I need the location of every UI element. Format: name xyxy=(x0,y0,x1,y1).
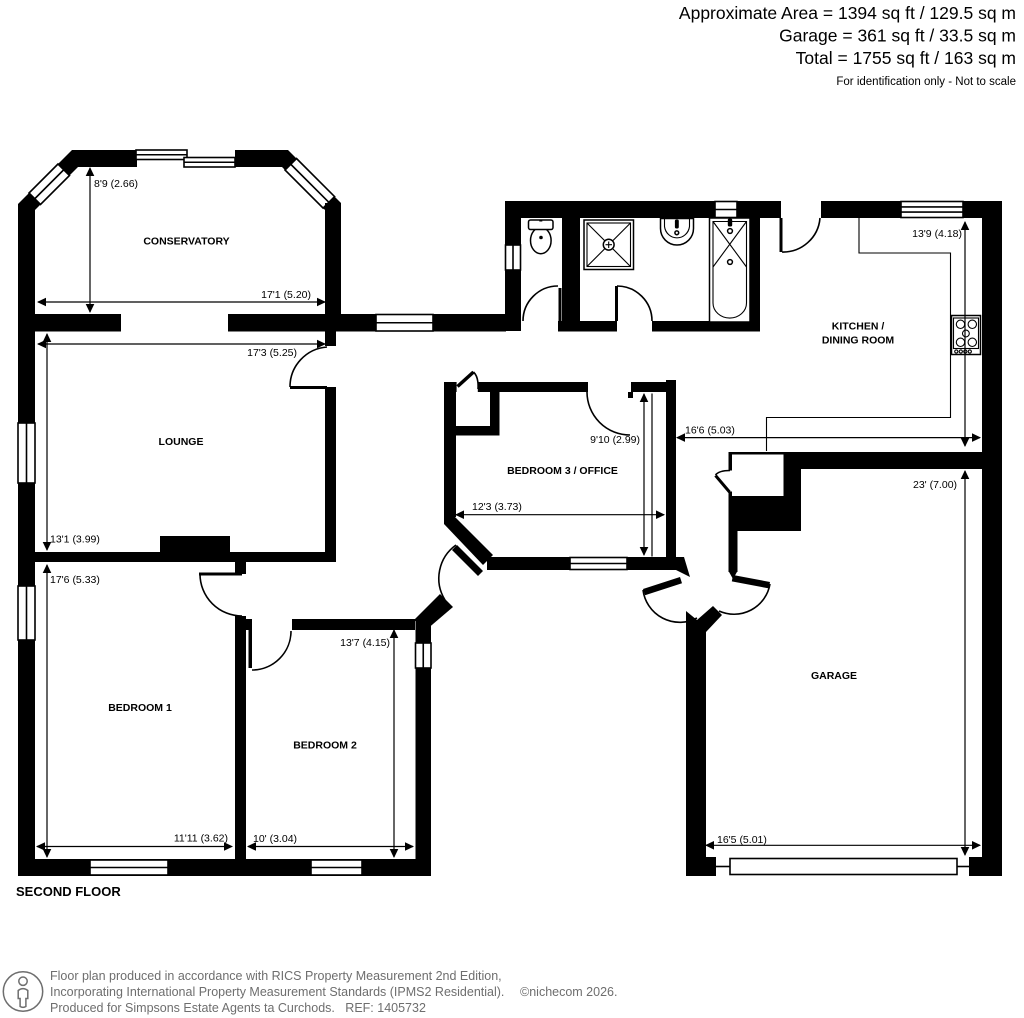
svg-text:For identification only - Not: For identification only - Not to scale xyxy=(836,76,1016,88)
svg-text:Produced for Simpsons Estate A: Produced for Simpsons Estate Agents ta C… xyxy=(50,1001,426,1015)
svg-text:16'6 (5.03): 16'6 (5.03) xyxy=(685,425,735,437)
svg-text:Garage = 361 sq ft / 33.5 sq m: Garage = 361 sq ft / 33.5 sq m xyxy=(779,26,1016,46)
svg-text:LOUNGE: LOUNGE xyxy=(159,436,204,448)
svg-text:Floor plan produced in accorda: Floor plan produced in accordance with R… xyxy=(50,969,502,983)
svg-text:13'1 (3.99): 13'1 (3.99) xyxy=(50,534,100,546)
svg-text:BEDROOM 1: BEDROOM 1 xyxy=(108,702,172,714)
svg-text:DINING ROOM: DINING ROOM xyxy=(822,335,895,347)
svg-text:KITCHEN /: KITCHEN / xyxy=(832,321,885,333)
svg-text:GARAGE: GARAGE xyxy=(811,670,857,682)
svg-text:Approximate Area = 1394 sq ft: Approximate Area = 1394 sq ft / 129.5 sq… xyxy=(679,3,1016,23)
svg-text:SECOND FLOOR: SECOND FLOOR xyxy=(16,884,121,899)
svg-text:9'10 (2.99): 9'10 (2.99) xyxy=(590,434,640,446)
svg-text:11'11 (3.62): 11'11 (3.62) xyxy=(174,833,228,845)
svg-text:17'3 (5.25): 17'3 (5.25) xyxy=(247,347,297,359)
svg-text:BEDROOM 2: BEDROOM 2 xyxy=(293,740,357,752)
svg-text:Incorporating International Pr: Incorporating International Property Mea… xyxy=(50,985,504,999)
svg-text:23' (7.00): 23' (7.00) xyxy=(913,479,957,491)
svg-text:17'1 (5.20): 17'1 (5.20) xyxy=(261,289,311,301)
svg-text:16'5 (5.01): 16'5 (5.01) xyxy=(717,834,767,846)
svg-text:17'6 (5.33): 17'6 (5.33) xyxy=(50,574,100,586)
svg-text:10' (3.04): 10' (3.04) xyxy=(253,833,297,845)
svg-text:8'9 (2.66): 8'9 (2.66) xyxy=(94,178,138,190)
svg-text:CONSERVATORY: CONSERVATORY xyxy=(143,236,229,248)
svg-text:12'3 (3.73): 12'3 (3.73) xyxy=(472,501,522,513)
svg-text:13'9 (4.18): 13'9 (4.18) xyxy=(912,228,962,240)
svg-text:©nichecom 2026.: ©nichecom 2026. xyxy=(520,985,617,999)
svg-text:BEDROOM 3 / OFFICE: BEDROOM 3 / OFFICE xyxy=(507,465,618,477)
svg-text:Total = 1755 sq ft / 163 sq m: Total = 1755 sq ft / 163 sq m xyxy=(796,48,1016,68)
svg-text:13'7 (4.15): 13'7 (4.15) xyxy=(340,637,390,649)
